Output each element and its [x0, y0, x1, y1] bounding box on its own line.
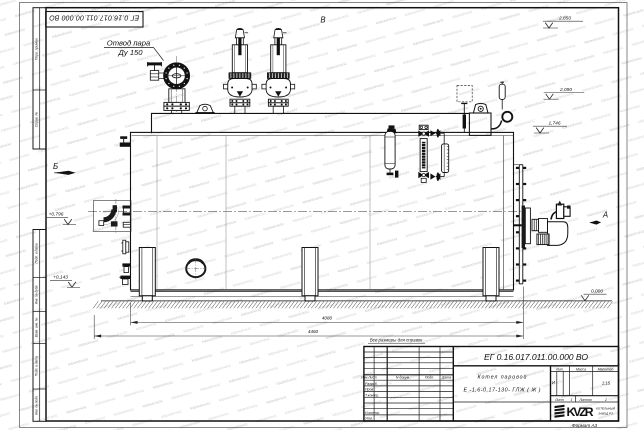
svg-text:Н.контр.: Н.контр.	[365, 411, 380, 415]
svg-text:Лист: Лист	[554, 398, 564, 402]
svg-text:Дата: Дата	[441, 376, 451, 380]
svg-text:Взам. инв. №: Взам. инв. №	[34, 317, 38, 337]
svg-text:Масштаб: Масштаб	[598, 367, 614, 371]
svg-text:Е -1,6-0,17-130- ГЛЖ ( Ж ): Е -1,6-0,17-130- ГЛЖ ( Ж )	[464, 387, 541, 393]
svg-text:Т.контр.: Т.контр.	[365, 393, 379, 397]
svg-text:+0,796: +0,796	[49, 212, 64, 218]
svg-text:Пров.: Пров.	[365, 388, 374, 392]
svg-text:А: А	[602, 211, 608, 220]
svg-text:Инв. № дубл.: Инв. № дубл.	[34, 285, 38, 305]
svg-text:Утв.: Утв.	[365, 417, 373, 421]
svg-text:1:15: 1:15	[602, 380, 611, 385]
svg-text:ЕГ 0.16.017.011.00.000 ВО: ЕГ 0.16.017.011.00.000 ВО	[49, 13, 140, 20]
svg-text:Перв. примен.: Перв. примен.	[34, 38, 38, 61]
svg-text:В: В	[320, 16, 325, 25]
svg-text:Формат А3: Формат А3	[572, 423, 598, 428]
svg-text:N докум.: N докум.	[396, 376, 410, 380]
svg-text:4080: 4080	[322, 315, 333, 320]
svg-text:Инв. № подл.: Инв. № подл.	[34, 395, 38, 415]
svg-text:Все размеры для справок: Все размеры для справок	[370, 338, 424, 343]
svg-text:Б: Б	[53, 162, 58, 171]
svg-text:2,850: 2,850	[558, 16, 571, 22]
svg-text:2,090: 2,090	[559, 87, 572, 93]
svg-text:Масса: Масса	[576, 367, 586, 371]
svg-text:Отвод пара: Отвод пара	[107, 39, 150, 48]
svg-text:ЕГ 0.16.017.011.00.000 ВО: ЕГ 0.16.017.011.00.000 ВО	[484, 352, 588, 362]
svg-text:4460: 4460	[308, 329, 319, 334]
svg-text:Подп.: Подп.	[425, 376, 434, 380]
svg-text:Котел паровой: Котел паровой	[478, 374, 527, 381]
svg-text:Подп. и дата: Подп. и дата	[34, 356, 38, 376]
svg-text:Лит.: Лит.	[555, 367, 564, 371]
svg-text:2: 2	[604, 398, 607, 402]
svg-text:Изм.Лист: Изм.Лист	[361, 376, 377, 380]
svg-text:Листов: Листов	[578, 398, 592, 402]
svg-text:KVZR: KVZR	[567, 405, 594, 419]
svg-text:Ду 150: Ду 150	[117, 48, 143, 57]
svg-text:И: И	[552, 380, 555, 385]
svg-text:ЗАВОД РЗ: ЗАВОД РЗ	[598, 412, 613, 416]
svg-text:1,746: 1,746	[548, 121, 560, 127]
svg-text:Справ. №: Справ. №	[34, 111, 38, 127]
svg-text:+0,143: +0,143	[53, 274, 68, 280]
svg-text:КОТЕЛЬНЫЙ: КОТЕЛЬНЫЙ	[596, 407, 616, 411]
svg-text:Подп. и дата: Подп. и дата	[34, 243, 38, 263]
svg-text:Разраб.: Разраб.	[365, 382, 378, 386]
svg-text:0,000: 0,000	[591, 288, 603, 294]
svg-text:1: 1	[571, 398, 573, 402]
